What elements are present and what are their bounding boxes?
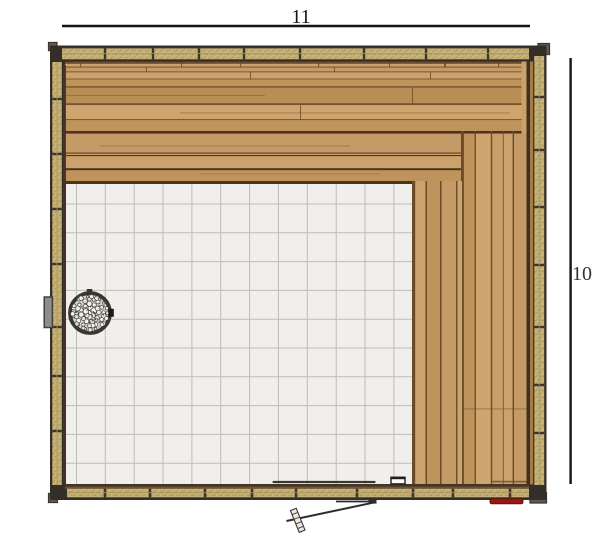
svg-text:10: 10 xyxy=(572,263,592,285)
svg-text:11: 11 xyxy=(291,6,310,28)
